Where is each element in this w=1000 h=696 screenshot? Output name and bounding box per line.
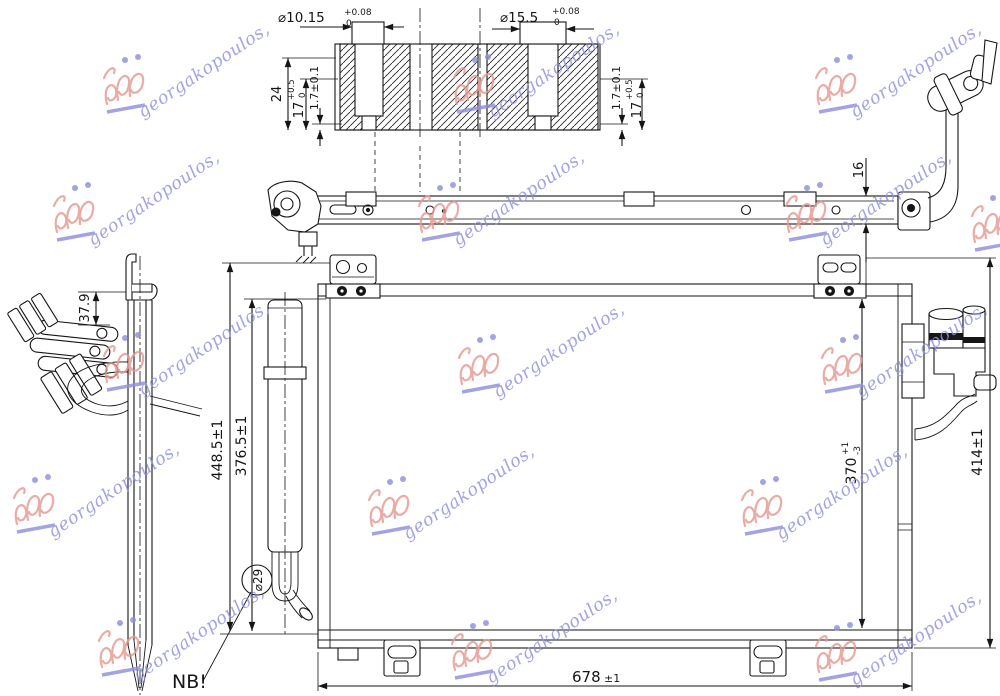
dim-flange-right: 1.7±0.1 xyxy=(610,66,623,110)
section-view-mounting-bosses: ⌀10.15 +0.08 0 ⌀15.5 +0.08 0 24 17 +0.5 … xyxy=(270,7,648,192)
dim-bolt-hole-dia-right: ⌀15.5 xyxy=(500,10,538,26)
dim-boss-right: 17 +0.5 0 xyxy=(625,79,646,118)
side-view-pipes: 37.9 xyxy=(7,254,202,695)
dim-height-inner-left: 376.5±1 xyxy=(234,416,250,477)
dim-boss-left: 17 +0.5 0 xyxy=(287,79,308,118)
front-view-condenser: 448.5±1 376.5±1 370 +1 -3 414±1 678 ±1 N… xyxy=(172,255,996,693)
bottom-bracket-right xyxy=(750,640,786,676)
dim-height-outer-left: 448.5±1 xyxy=(210,420,226,481)
dim-width-tol: ±1 xyxy=(604,672,620,685)
condenser-technical-drawing: ⌀10.15 +0.08 0 ⌀15.5 +0.08 0 24 17 +0.5 … xyxy=(0,0,1000,696)
svg-text:370: 370 xyxy=(844,458,860,485)
svg-text:+0.5: +0.5 xyxy=(287,79,297,100)
dim-width: 678 xyxy=(572,668,601,686)
dim-bolt-hole-dia-right-tol-dn: 0 xyxy=(554,18,560,28)
projection-line xyxy=(375,132,460,192)
dim-pipe-offset: 37.9 xyxy=(78,294,93,323)
top-bracket-left xyxy=(326,255,380,298)
svg-text:+1: +1 xyxy=(841,442,851,455)
dim-bolt-hole-dia-left-tol-up: +0.08 xyxy=(344,8,372,18)
leader-line xyxy=(203,592,251,681)
bottom-bracket-left xyxy=(384,640,420,676)
svg-text:17: 17 xyxy=(292,102,307,119)
dim-height-outer-right: 414±1 xyxy=(970,428,986,475)
dim-drier-dia: ⌀29 xyxy=(251,569,265,592)
dim-total-height: 24 xyxy=(270,86,285,103)
dim-bolt-hole-dia-right-tol-up: +0.08 xyxy=(552,7,580,17)
dim-bolt-hole-dia-left-tol-dn: 0 xyxy=(346,19,352,29)
drawing-canvas: ⌀10.15 +0.08 0 ⌀15.5 +0.08 0 24 17 +0.5 … xyxy=(0,0,1000,696)
dim-bolt-hole-dia-left: ⌀10.15 xyxy=(278,10,325,26)
dim-flange-left: 1.7±0.1 xyxy=(308,66,321,110)
svg-text:0: 0 xyxy=(298,93,308,98)
svg-text:-3: -3 xyxy=(853,446,863,455)
dim-core-thickness: 16 xyxy=(852,162,867,179)
pipe-fittings-right xyxy=(902,306,996,440)
svg-text:+0.5: +0.5 xyxy=(625,79,635,100)
svg-text:17: 17 xyxy=(630,102,645,119)
note-nb: NB! xyxy=(172,671,207,693)
top-bracket-right xyxy=(814,255,866,298)
svg-text:0: 0 xyxy=(636,93,646,98)
